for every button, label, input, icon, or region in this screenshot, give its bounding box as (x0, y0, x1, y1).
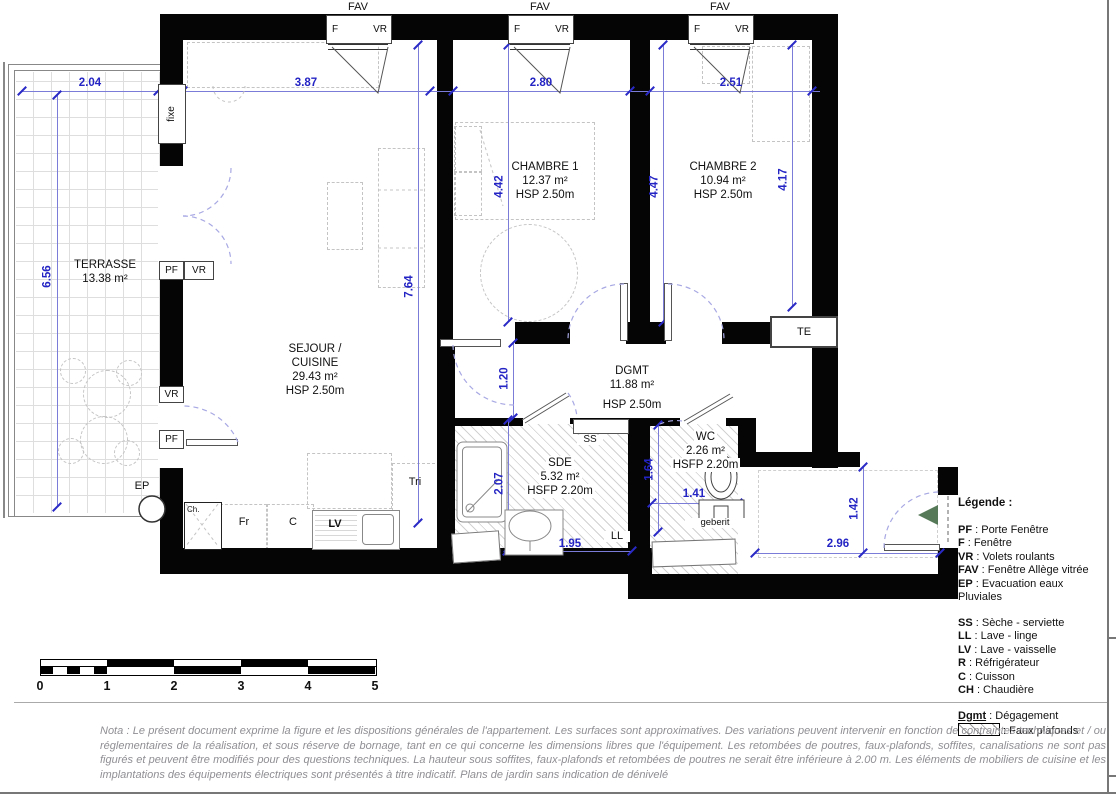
legend-label: : Chaudière (974, 684, 1034, 696)
dim-chambre2-width: 2.51 (701, 77, 761, 90)
window-fav-3: F VR (688, 15, 754, 44)
room-name: SEJOUR / (250, 342, 380, 356)
legend-key: Dgmt (958, 710, 986, 722)
te-box: TE (770, 316, 838, 348)
window-sill (510, 44, 570, 50)
tri-label: Tri (398, 477, 432, 488)
dim-sde-width: 1.95 (540, 538, 600, 551)
room-sde: SDE 5.32 m² HSFP 2.20m (500, 456, 620, 498)
dim-chambre1-height2: 4.47 (649, 167, 662, 207)
page-border-bottom (0, 792, 1116, 794)
entry-direction-arrow (918, 505, 938, 525)
fav-tag-1: FAV (328, 2, 388, 13)
room-name: CHAMBRE 2 (663, 160, 783, 174)
legend-item: LV : Lave - vaisselle (958, 644, 1110, 658)
legend: Légende : PF : Porte Fenêtre F : Fenêtre… (958, 497, 1110, 739)
dim-wc-width: 1.41 (664, 488, 724, 501)
legend-label: : Evacuation eaux Pluviales (958, 578, 1063, 604)
dimension-line (418, 45, 419, 523)
wall-niche (652, 539, 737, 568)
furniture-dashed (454, 172, 482, 216)
scale-segment (308, 667, 375, 675)
room-name: SDE (546, 456, 574, 470)
room-wc: WC 2.26 m² HSFP 2.20m (648, 430, 763, 472)
legend-key: EP (958, 578, 973, 590)
legend-key: SS (958, 617, 973, 629)
room-height: HSP 2.50m (663, 188, 783, 202)
legend-group-equipment: SS : Sèche - serviette LL : Lave - linge… (958, 617, 1110, 698)
window-fav-2: F VR (508, 15, 574, 44)
legend-key: C (958, 671, 966, 683)
furniture-round-dashed (58, 438, 84, 464)
dim-degagement-width: 1.20 (499, 359, 512, 399)
scale-tick-1: 1 (97, 679, 117, 693)
room-height: HSFP 2.20m (525, 484, 595, 498)
window-fav-1: F VR (326, 15, 392, 44)
furniture-dashed (307, 453, 392, 509)
legend-key: PF (958, 524, 972, 536)
wall (630, 40, 650, 322)
room-name: TERRASSE (38, 258, 172, 272)
scale-segment (107, 660, 174, 667)
legend-item: F : Fenêtre (958, 537, 1110, 551)
room-name: CUISINE (250, 356, 380, 370)
dimension-line (507, 551, 632, 552)
room-area: 11.88 m² (572, 378, 692, 392)
legend-key: LL (958, 630, 971, 642)
legend-item: R : Réfrigérateur (958, 657, 1110, 671)
wall-opening (570, 322, 626, 344)
room-name: DGMT (572, 364, 692, 378)
sde-door-leaf (522, 393, 569, 423)
dimension-line (652, 503, 738, 504)
legend-title: Légende : (958, 497, 1110, 511)
fixed-window: fixe (158, 84, 186, 144)
dimension-line (755, 553, 940, 554)
legend-key: FAV (958, 564, 979, 576)
vr2-label: VR (159, 386, 184, 403)
wall (437, 40, 453, 322)
furniture-round-dashed (114, 440, 140, 466)
legend-item: SS : Sèche - serviette (958, 617, 1110, 631)
dim-entree-height: 1.42 (849, 489, 862, 529)
furniture-arc (213, 86, 245, 102)
legend-label: : Sèche - serviette (973, 617, 1065, 629)
geberit-label: geberit (685, 518, 745, 528)
legend-item: VR : Volets roulants (958, 551, 1110, 565)
legend-key: VR (958, 551, 973, 563)
furniture-round-dashed (116, 360, 142, 386)
wall-opening (666, 322, 722, 344)
dim-terrasse-width: 2.04 (60, 77, 120, 90)
window-sill (690, 44, 750, 50)
scale-segment (241, 660, 308, 667)
room-terrasse: TERRASSE 13.38 m² (38, 258, 172, 286)
room-area: 13.38 m² (38, 272, 172, 286)
furniture-round-dashed (60, 358, 86, 384)
ch-label: Ch. (187, 506, 199, 514)
scale-segment (174, 667, 241, 675)
dimension-line (513, 343, 514, 418)
pf2-label: PF (159, 430, 184, 449)
door-arc (183, 216, 231, 264)
window-label-vr: VR (373, 25, 387, 35)
fr-label: Fr (232, 517, 256, 528)
terrasse-outer-line (3, 62, 5, 518)
window-label-f: F (694, 25, 700, 35)
legend-label: : Volets roulants (973, 551, 1054, 563)
scale-segment (40, 667, 53, 675)
room-chambre2: CHAMBRE 2 10.94 m² HSP 2.50m (663, 160, 783, 202)
nota-text: Nota : Le présent document exprime la fi… (100, 724, 1106, 782)
dim-chambre1-width: 2.80 (511, 77, 571, 90)
room-height: HSP 2.50m (250, 384, 380, 398)
dim-chambre2-height: 4.17 (778, 160, 791, 200)
wall (628, 574, 958, 599)
scale-tick-4: 4 (298, 679, 318, 693)
legend-item-dgmt: Dgmt : Dégagement (958, 710, 1110, 724)
dimension-line (22, 91, 820, 92)
ll-label: LL (604, 531, 630, 542)
legend-label: : Lave - vaisselle (971, 644, 1056, 656)
scale-segment (94, 667, 107, 675)
wall-opening (158, 166, 185, 266)
floor-plan-page: F VR F VR F VR FAV FAV FAV fixe PF VR VR… (0, 0, 1116, 800)
wall (938, 467, 958, 495)
dim-entree-width: 2.96 (808, 538, 868, 551)
wall (726, 418, 738, 426)
furniture-dashed (327, 182, 363, 250)
legend-item: LL : Lave - linge (958, 630, 1110, 644)
towel-radiator (573, 419, 629, 434)
legend-label: : Lave - linge (971, 630, 1037, 642)
wall-opening (938, 495, 958, 548)
wall (650, 418, 680, 426)
window-label-f: F (332, 25, 338, 35)
lv-label: LV (314, 519, 356, 530)
dim-terrasse-height: 6.56 (42, 257, 55, 297)
fav-tag-2: FAV (510, 2, 570, 13)
legend-group-windows: PF : Porte Fenêtre F : Fenêtre VR : Vole… (958, 524, 1110, 605)
legend-label: : Dégagement (986, 710, 1058, 722)
dimension-line (57, 95, 58, 507)
legend-key: R (958, 657, 966, 669)
door-leaf-entree (884, 544, 940, 551)
legend-item: CH : Chaudière (958, 684, 1110, 698)
legend-item: C : Cuisson (958, 671, 1110, 685)
room-area: 29.43 m² (250, 370, 380, 384)
door-arc (183, 406, 238, 442)
door-leaf-pf2 (186, 439, 238, 446)
separator-line (14, 702, 1108, 703)
dim-wc-height: 1.64 (644, 450, 657, 490)
legend-key: LV (958, 644, 971, 656)
room-area: 10.94 m² (663, 174, 783, 188)
wall (437, 322, 455, 550)
legend-key: F (958, 537, 965, 549)
room-name: WC (694, 430, 717, 444)
window-label-f: F (514, 25, 520, 35)
scale-segment (67, 667, 80, 675)
room-height: HSP 2.50m (572, 398, 692, 412)
legend-key: CH (958, 684, 974, 696)
legend-item: PF : Porte Fenêtre (958, 524, 1110, 538)
door-leaf-chambre2 (664, 283, 672, 341)
fixe-label: fixe (167, 106, 177, 122)
legend-label: : Cuisson (966, 671, 1015, 683)
room-sejour-cuisine: SEJOUR / CUISINE 29.43 m² HSP 2.50m (250, 342, 380, 398)
legend-item: FAV : Fenêtre Allège vitrée (958, 564, 1110, 578)
c-label: C (284, 517, 302, 528)
wall (812, 344, 838, 468)
window-label-vr: VR (735, 25, 749, 35)
legend-label: : Porte Fenêtre (972, 524, 1048, 536)
scale-tick-0: 0 (30, 679, 50, 693)
legend-item: EP : Evacuation eaux Pluviales (958, 578, 1110, 605)
wall (938, 548, 958, 599)
ep-label: EP (128, 481, 156, 492)
legend-label: : Fenêtre Allège vitrée (979, 564, 1089, 576)
wall-niche (451, 530, 501, 563)
border-tick (1107, 775, 1116, 777)
scale-tick-3: 3 (231, 679, 251, 693)
room-dgmt: DGMT 11.88 m² HSP 2.50m (572, 364, 692, 412)
dim-sejour-height: 7.64 (404, 267, 417, 307)
door-leaf-sejour (440, 339, 501, 347)
dimension-line (792, 45, 793, 307)
vr1-label: VR (184, 261, 214, 280)
ss-label: SS (577, 435, 603, 445)
fav-tag-3: FAV (690, 2, 750, 13)
room-area: 2.26 m² (684, 444, 727, 458)
window-label-vr: VR (555, 25, 569, 35)
furniture-round-dashed (480, 224, 578, 322)
legend-label: : Réfrigérateur (966, 657, 1039, 669)
room-height: HSFP 2.20m (671, 458, 741, 472)
dim-sde-height: 2.07 (494, 464, 507, 504)
dim-sejour-width: 3.87 (276, 77, 336, 90)
furniture-dashed (752, 46, 810, 142)
scale-tick-5: 5 (365, 679, 385, 693)
wall (812, 14, 838, 318)
door-arc (183, 168, 231, 216)
dim-chambre1-height: 4.42 (494, 167, 507, 207)
furniture-dashed (454, 126, 482, 172)
window-sill (328, 44, 388, 50)
scale-tick-2: 2 (164, 679, 184, 693)
room-area: 5.32 m² (539, 470, 582, 484)
door-leaf-chambre1 (620, 283, 628, 341)
sink (362, 514, 394, 545)
legend-label: : Fenêtre (965, 537, 1012, 549)
